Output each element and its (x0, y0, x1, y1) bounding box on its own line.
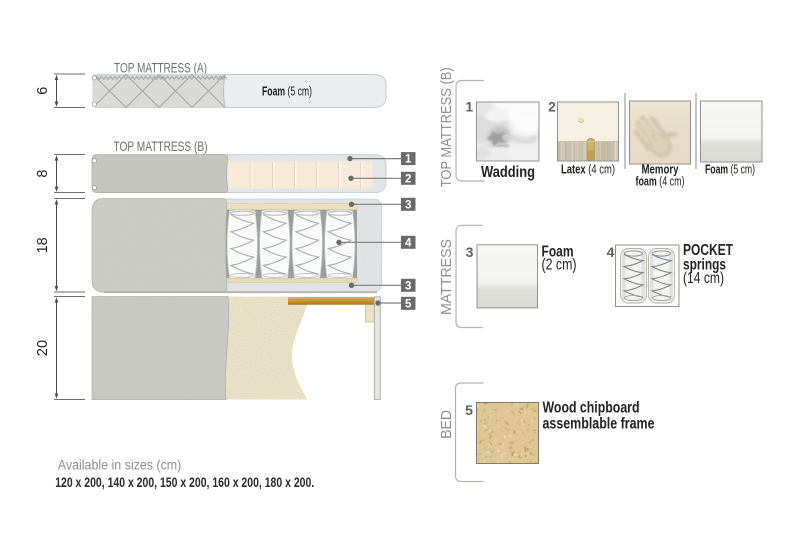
svg-text:120 x 200, 140 x 200, 150 x 20: 120 x 200, 140 x 200, 150 x 200, 160 x 2… (55, 474, 314, 490)
svg-text:TOP MATTRESS (B): TOP MATTRESS (B) (438, 67, 455, 187)
svg-text:3: 3 (466, 244, 474, 260)
svg-text:Foam (5 cm): Foam (5 cm) (705, 163, 755, 177)
svg-text:BED: BED (438, 410, 455, 439)
svg-text:5: 5 (465, 402, 473, 418)
svg-text:MATTRESS: MATTRESS (438, 239, 455, 315)
svg-text:assemblable frame: assemblable frame (543, 415, 655, 432)
svg-text:foam (4 cm): foam (4 cm) (636, 175, 685, 189)
svg-text:1: 1 (465, 99, 473, 115)
svg-text:Wadding: Wadding (481, 164, 535, 181)
svg-text:8: 8 (35, 170, 51, 178)
svg-text:TOP MATTRESS (A): TOP MATTRESS (A) (114, 61, 207, 76)
svg-text:4: 4 (405, 237, 412, 249)
svg-text:2: 2 (405, 173, 411, 185)
svg-text:3: 3 (405, 280, 411, 292)
svg-text:(2 cm): (2 cm) (542, 256, 577, 273)
svg-text:Foam (5 cm): Foam (5 cm) (262, 85, 312, 99)
svg-text:TOP MATTRESS (B): TOP MATTRESS (B) (114, 139, 208, 154)
svg-text:1: 1 (405, 154, 412, 166)
svg-text:6: 6 (35, 87, 51, 95)
svg-text:20: 20 (35, 340, 51, 356)
svg-text:Wood chipboard: Wood chipboard (543, 400, 640, 417)
svg-text:Available in sizes (cm): Available in sizes (cm) (58, 457, 182, 473)
svg-text:5: 5 (405, 298, 412, 310)
svg-text:4: 4 (607, 244, 615, 260)
svg-text:3: 3 (405, 199, 411, 211)
svg-text:(14 cm): (14 cm) (683, 270, 724, 287)
svg-text:2: 2 (548, 99, 556, 115)
svg-text:Latex (4 cm): Latex (4 cm) (561, 163, 615, 177)
svg-text:18: 18 (35, 237, 51, 253)
